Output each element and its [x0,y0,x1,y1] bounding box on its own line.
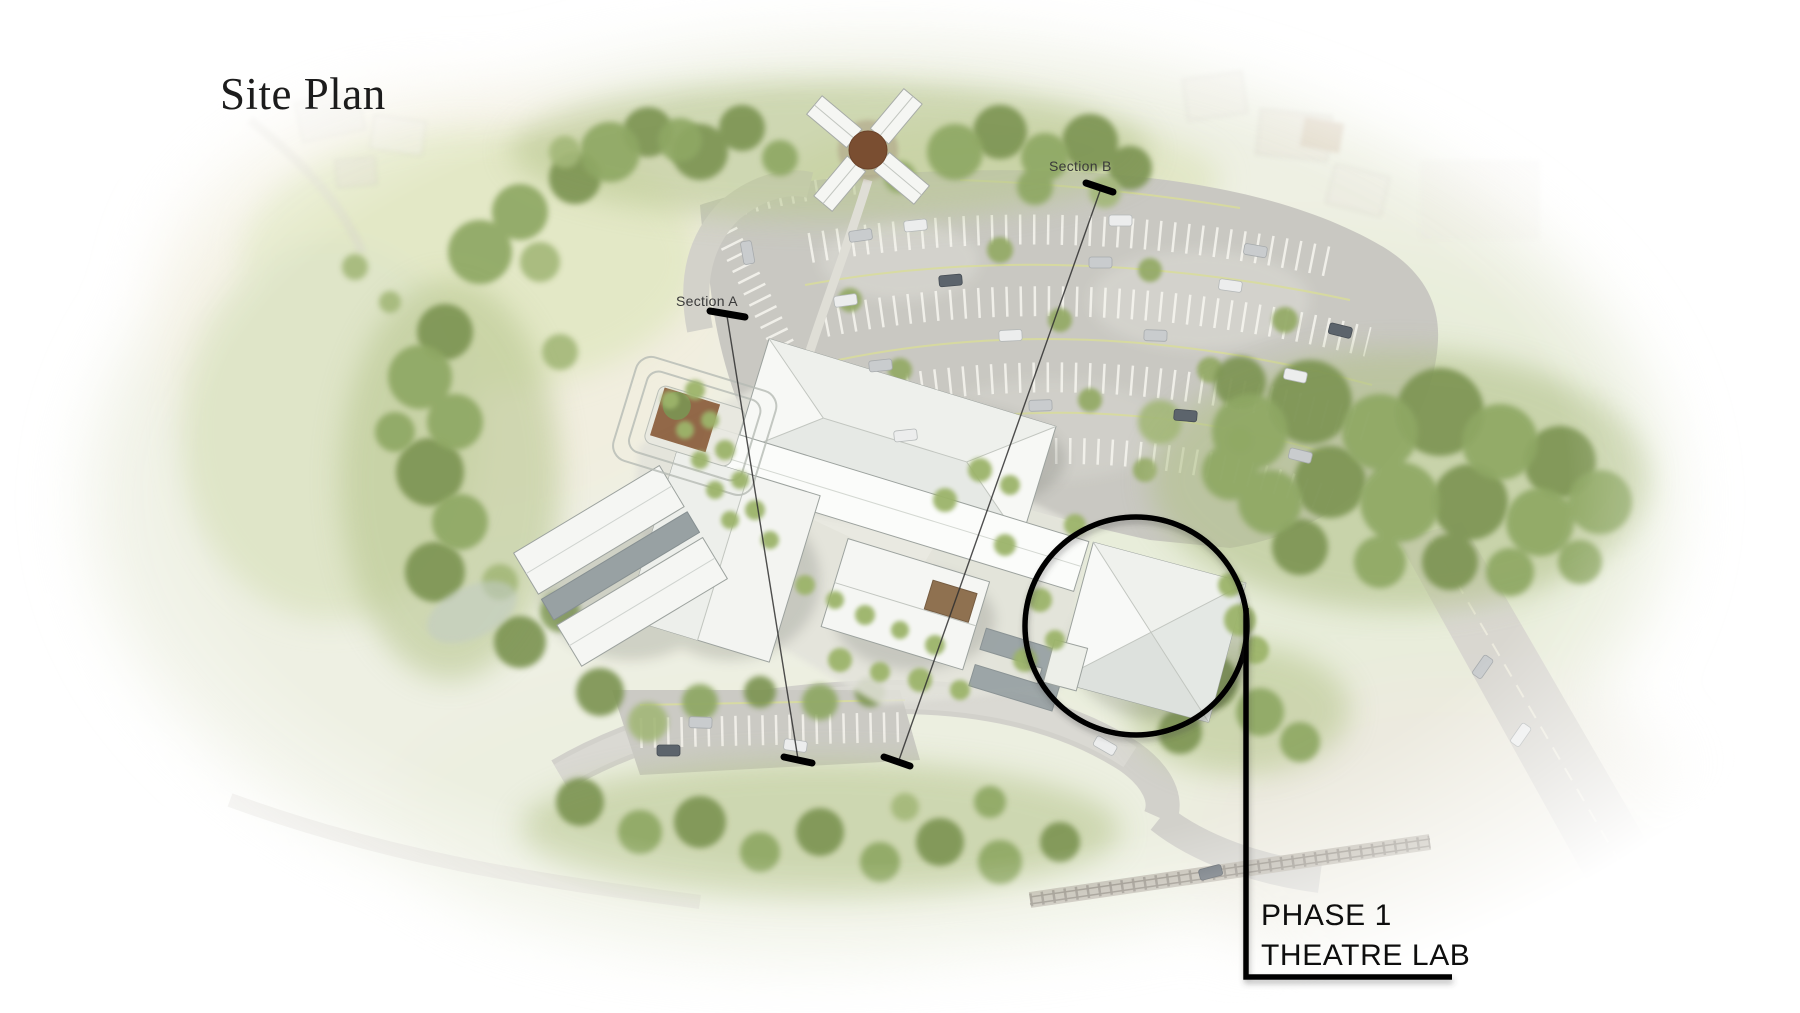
callout-building-label: THEATRE LAB [1261,939,1470,973]
section-b-label: Section B [1049,158,1112,174]
section-a-label: Section A [676,293,738,309]
site-plan-illustration [0,0,1800,1013]
page-title: Site Plan [220,68,386,120]
site-plan-page: Site Plan Section A Section B PHASE 1 TH… [0,0,1800,1013]
callout-phase-label: PHASE 1 [1261,899,1392,933]
